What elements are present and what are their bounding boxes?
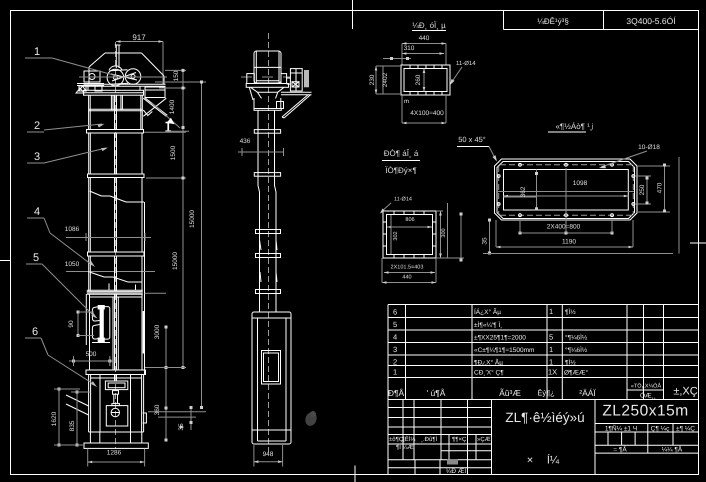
svg-text:3: 3 xyxy=(34,151,40,163)
svg-text:4: 4 xyxy=(34,206,40,218)
svg-text:90: 90 xyxy=(68,320,75,328)
svg-text:1086: 1086 xyxy=(65,226,80,233)
svg-text:«¶½Áò¶ ¹¸: «¶½Áò¶ ¹¸ xyxy=(555,122,592,131)
svg-text:¼¼ ¶Å: ¼¼ ¶Å xyxy=(662,446,683,454)
svg-text:1: 1 xyxy=(393,368,397,377)
svg-text:5: 5 xyxy=(33,252,39,264)
svg-text:1: 1 xyxy=(549,358,553,367)
svg-text:m: m xyxy=(404,99,409,105)
svg-text:360: 360 xyxy=(154,404,161,415)
svg-text:¶Ì½: ¶Ì½ xyxy=(565,308,576,316)
svg-text:±¶XX25¶1¶=2000: ±¶XX25¶1¶=2000 xyxy=(474,335,526,342)
svg-text:436: 436 xyxy=(240,138,251,145)
svg-text:300: 300 xyxy=(441,228,447,237)
svg-text:3: 3 xyxy=(393,345,397,354)
svg-text:1098: 1098 xyxy=(573,180,588,187)
svg-text:Ç¶ ¼ç: Ç¶ ¼ç xyxy=(651,426,670,433)
svg-text:2402: 2402 xyxy=(382,72,389,87)
svg-text:1: 1 xyxy=(34,46,40,58)
svg-text:' ú¶Å: ' ú¶Å xyxy=(427,388,446,398)
svg-text:806: 806 xyxy=(405,217,414,223)
svg-text:j: j xyxy=(591,123,593,130)
svg-text:500: 500 xyxy=(86,351,97,358)
svg-text:470: 470 xyxy=(657,182,664,193)
svg-text:°¶¼6Ì½: °¶¼6Ì½ xyxy=(565,334,588,342)
svg-text:¶¶×Ç: ¶¶×Ç xyxy=(452,436,467,443)
svg-text:1500: 1500 xyxy=(170,145,177,160)
svg-text:Í¼: Í¼ xyxy=(547,454,560,467)
svg-text:440: 440 xyxy=(419,35,430,42)
svg-text:302: 302 xyxy=(393,231,399,240)
svg-text:362: 362 xyxy=(520,186,527,197)
svg-text:3Q400-5.6ÓÍ: 3Q400-5.6ÓÍ xyxy=(626,16,676,26)
svg-text:5: 5 xyxy=(549,333,553,342)
svg-text:6: 6 xyxy=(32,326,38,338)
svg-text:35: 35 xyxy=(482,237,489,245)
svg-text:310: 310 xyxy=(404,45,415,52)
svg-text:11-Ø14: 11-Ø14 xyxy=(456,60,476,67)
svg-text:¶Ð¿X° Ãµ: ¶Ð¿X° Ãµ xyxy=(474,359,503,367)
svg-text:230: 230 xyxy=(369,74,376,85)
svg-text:5: 5 xyxy=(393,320,397,329)
svg-text:15000: 15000 xyxy=(172,252,179,270)
svg-text:±,XÇ: ±,XÇ xyxy=(673,386,697,398)
svg-text:¼Ð¸ óÏ¸ µ: ¼Ð¸ óÏ¸ µ xyxy=(412,21,446,30)
svg-text:¼Ð ÆÌ: ¼Ð ÆÌ xyxy=(446,467,466,475)
svg-text:4: 4 xyxy=(393,333,397,342)
svg-text:2X400=800: 2X400=800 xyxy=(547,224,581,231)
svg-text:»ÇÆÌ: »ÇÆÌ xyxy=(477,435,493,443)
svg-text:ÓÆ¸¸: ÓÆ¸¸ xyxy=(640,392,656,400)
svg-text:¶Ì½: ¶Ì½ xyxy=(565,359,576,367)
svg-text:3000: 3000 xyxy=(154,324,161,339)
svg-text:2X101.5=403: 2X101.5=403 xyxy=(391,265,424,271)
svg-text:±ô¶Ç|ÊÌ¼: ±ô¶Ç|ÊÌ¼ xyxy=(389,435,416,443)
svg-text:ÍÁ¿X° Ãµ: ÍÁ¿X° Ãµ xyxy=(474,308,501,316)
svg-text:1: 1 xyxy=(549,307,553,316)
svg-text:1: 1 xyxy=(549,345,553,354)
svg-text:²ÄÁÏ: ²ÄÁÏ xyxy=(579,388,596,398)
svg-text:ÐÒ¶ áÎ¸ á: ÐÒ¶ áÎ¸ á xyxy=(384,149,419,158)
svg-text:2: 2 xyxy=(34,120,40,132)
svg-text:ÏÒ¶Ðý×¶: ÏÒ¶Ðý×¶ xyxy=(385,166,417,175)
svg-text:1X: 1X xyxy=(548,368,557,377)
svg-text:835: 835 xyxy=(69,420,76,431)
svg-text:CÐ¸'X° Ç¶: CÐ¸'X° Ç¶ xyxy=(474,370,504,377)
svg-text:1¶Ñ¼ ±1 Ч: 1¶Ñ¼ ±1 Ч xyxy=(605,425,637,433)
svg-text:50 x 45°: 50 x 45° xyxy=(458,135,486,144)
svg-text:ZL250x15m: ZL250x15m xyxy=(602,403,688,420)
svg-text:2: 2 xyxy=(393,358,397,367)
svg-text:11-Ø14: 11-Ø14 xyxy=(394,197,412,203)
svg-text:10-Ø18: 10-Ø18 xyxy=(638,144,660,151)
svg-text:= ¶Å: = ¶Å xyxy=(613,446,627,454)
svg-text:250: 250 xyxy=(639,184,646,195)
svg-text:±¶ ¼Ç: ±¶ ¼Ç xyxy=(676,426,695,433)
svg-text:440: 440 xyxy=(402,275,411,281)
svg-text:917: 917 xyxy=(132,33,146,42)
svg-text:¼ÐÊ¹ý³§: ¼ÐÊ¹ý³§ xyxy=(537,17,569,26)
svg-text:1286: 1286 xyxy=(107,450,122,457)
svg-text:1190: 1190 xyxy=(562,239,576,246)
svg-text:4X100=400: 4X100=400 xyxy=(410,110,444,117)
svg-text:150: 150 xyxy=(173,70,180,81)
svg-text:Ø¶ÆÆ°: Ø¶ÆÆ° xyxy=(564,370,589,377)
svg-text:15000: 15000 xyxy=(189,210,196,228)
svg-text:±Ì¶«¼'¶ Ì¸: ±Ì¶«¼'¶ Ì¸ xyxy=(474,321,502,329)
svg-text:Êý¶¿: Êý¶¿ xyxy=(537,389,555,398)
svg-text:¸.Ðû¶Ì: ¸.Ðû¶Ì xyxy=(421,435,438,443)
svg-text:6: 6 xyxy=(393,308,397,317)
svg-text:«C±¶¼¶1¶=1500mm: «C±¶¼¶1¶=1500mm xyxy=(474,347,534,354)
svg-text:«TÖ¿X¼ÒÅ: «TÖ¿X¼ÒÅ xyxy=(631,383,662,390)
svg-text:Ð¶Å: Ð¶Å xyxy=(388,388,405,398)
svg-text:Ãû³Æ: Ãû³Æ xyxy=(499,388,521,398)
svg-text:°¶¼6Ì½: °¶¼6Ì½ xyxy=(565,346,588,354)
svg-text:260: 260 xyxy=(415,74,422,85)
svg-text:1050: 1050 xyxy=(65,261,80,268)
svg-text:1400: 1400 xyxy=(169,99,176,114)
svg-text:×: × xyxy=(527,455,533,467)
svg-text:1620: 1620 xyxy=(51,411,58,426)
svg-text:ZL¶·ê½ìéý»ú: ZL¶·ê½ìéý»ú xyxy=(505,410,584,425)
svg-text:948: 948 xyxy=(263,451,274,458)
svg-text:¶Ì ¼Æ: ¶Ì ¼Æ xyxy=(396,443,414,451)
